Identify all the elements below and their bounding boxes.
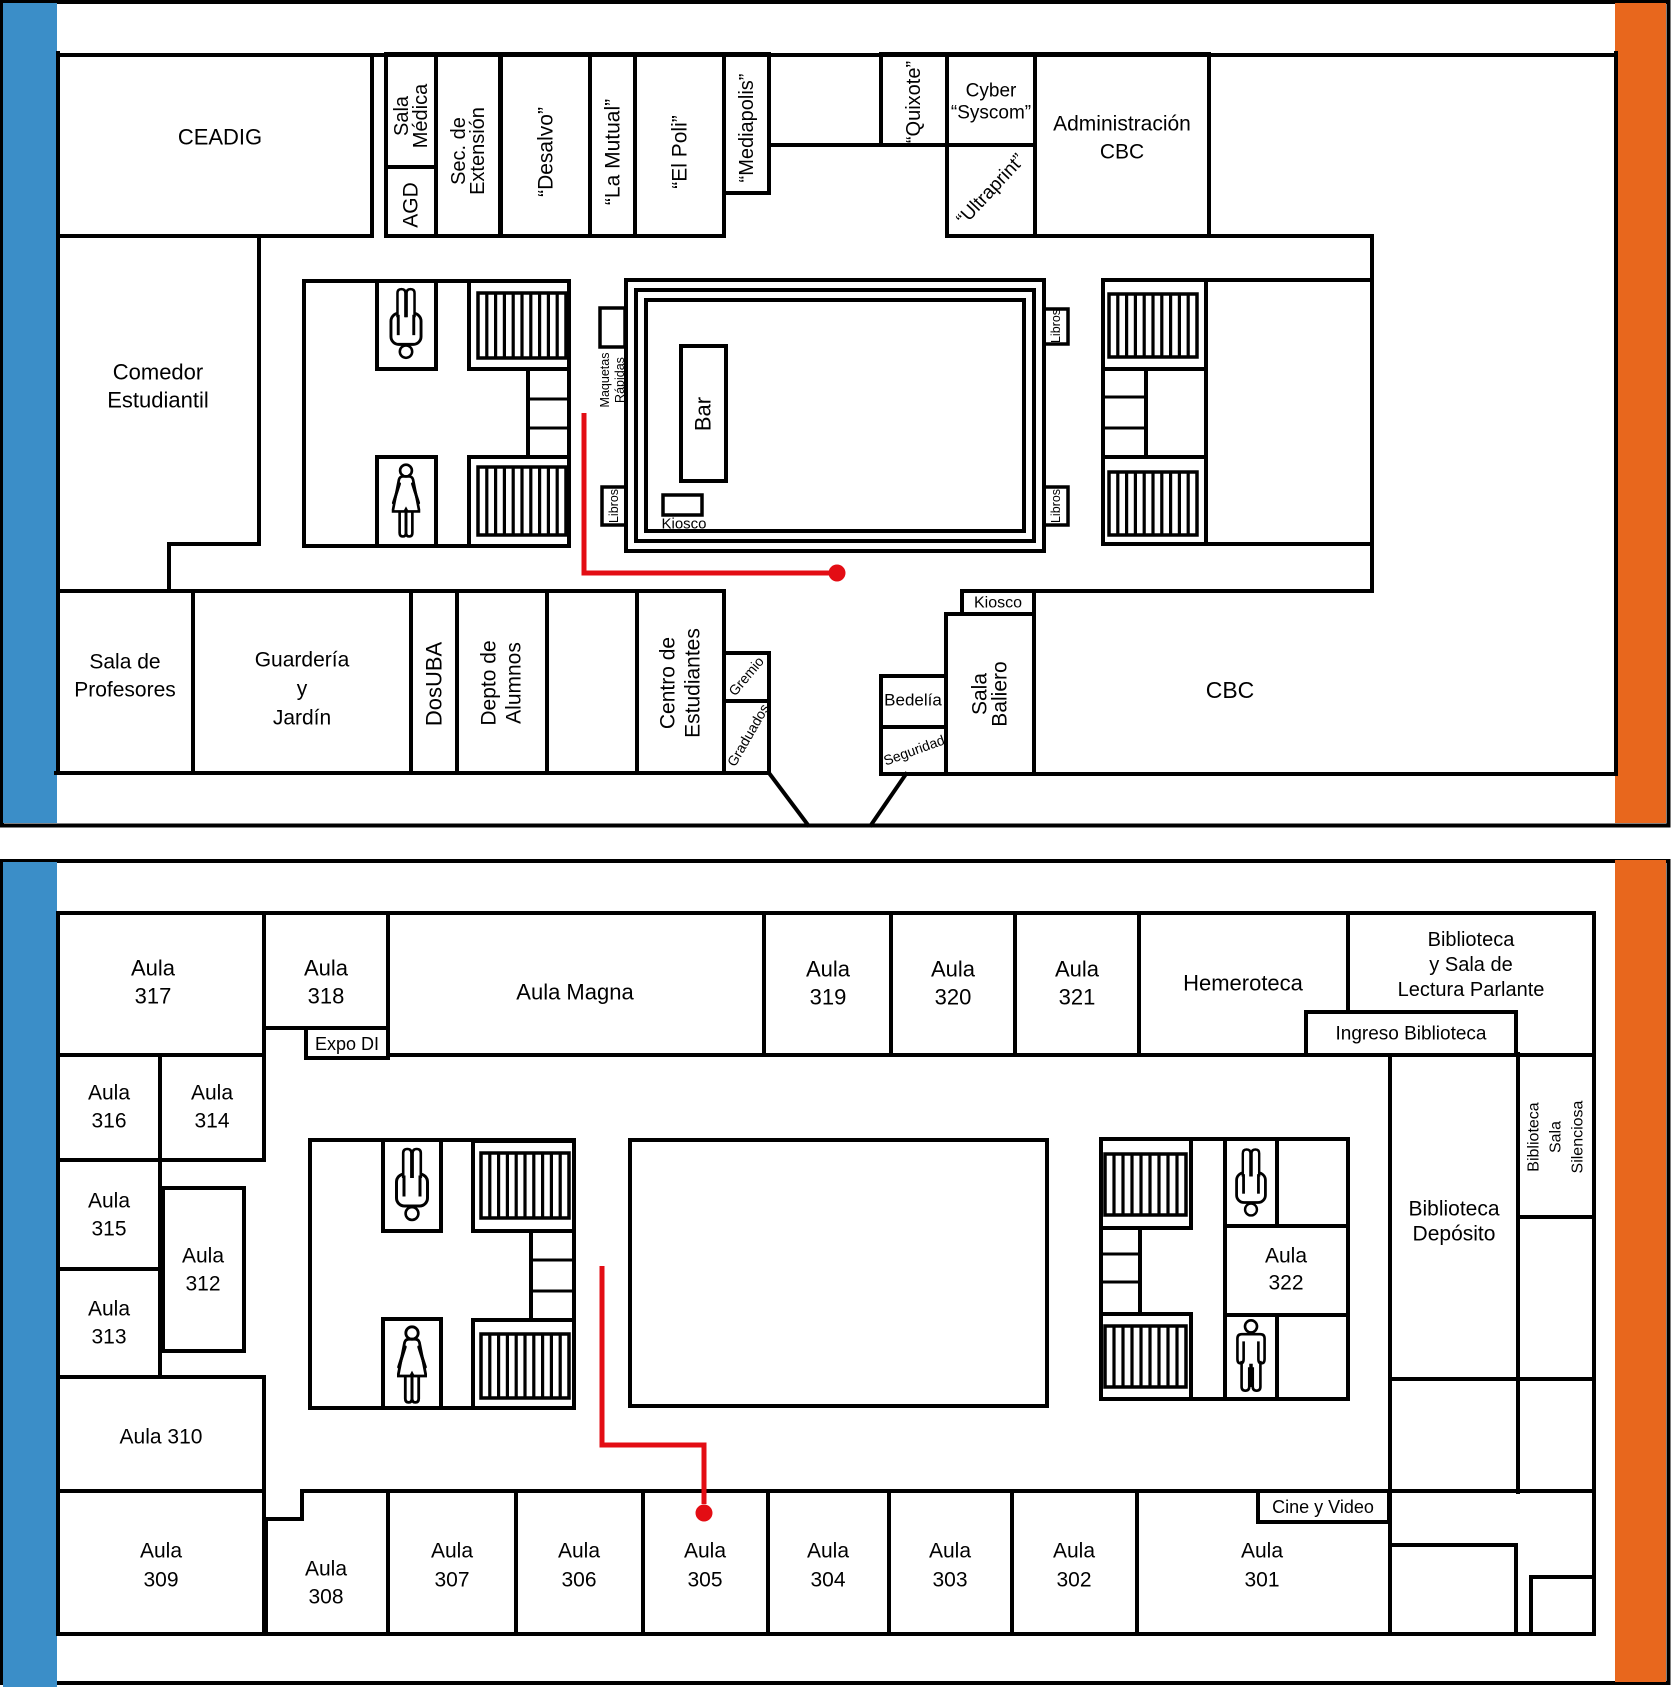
svg-text:“Desalvo”: “Desalvo” (535, 107, 558, 197)
svg-text:Aula 310: Aula 310 (120, 1426, 203, 1449)
svg-text:Profesores: Profesores (74, 679, 176, 702)
svg-text:Centro de: Centro de (657, 637, 680, 729)
svg-text:Aula: Aula (929, 1540, 971, 1563)
svg-text:322: 322 (1268, 1272, 1303, 1295)
svg-text:301: 301 (1244, 1569, 1279, 1592)
svg-text:Aula: Aula (931, 957, 976, 982)
svg-text:Maquetas: Maquetas (598, 353, 612, 408)
svg-text:Depto de: Depto de (478, 640, 501, 725)
svg-text:Médica: Médica (410, 83, 432, 148)
svg-text:“Mediapolis”: “Mediapolis” (736, 74, 758, 183)
svg-text:309: 309 (143, 1569, 178, 1592)
svg-text:Rápidas: Rápidas (613, 357, 627, 403)
svg-text:Administración: Administración (1053, 113, 1191, 136)
svg-text:CBC: CBC (1100, 141, 1144, 164)
svg-text:Libros: Libros (607, 489, 621, 523)
svg-text:Bedelía: Bedelía (884, 691, 942, 710)
svg-text:Aula: Aula (304, 956, 349, 981)
svg-text:Aula: Aula (1055, 957, 1100, 982)
svg-text:317: 317 (135, 984, 172, 1009)
svg-text:Aula: Aula (1053, 1540, 1095, 1563)
svg-text:Ingreso Biblioteca: Ingreso Biblioteca (1335, 1024, 1486, 1045)
svg-text:302: 302 (1056, 1569, 1091, 1592)
svg-text:306: 306 (561, 1569, 596, 1592)
svg-text:CBC: CBC (1206, 677, 1255, 703)
svg-text:CEADIG: CEADIG (178, 125, 262, 150)
svg-text:“La Mutual”: “La Mutual” (602, 99, 625, 205)
svg-text:AGD: AGD (400, 182, 423, 228)
svg-text:320: 320 (935, 985, 972, 1010)
svg-text:303: 303 (932, 1569, 967, 1592)
svg-text:Aula: Aula (191, 1082, 233, 1105)
svg-text:DosUBA: DosUBA (422, 641, 447, 726)
svg-text:“Syscom”: “Syscom” (951, 103, 1031, 124)
svg-text:“Quixote”: “Quixote” (903, 61, 925, 143)
svg-text:Lectura Parlante: Lectura Parlante (1398, 979, 1545, 1001)
svg-text:Biblioteca: Biblioteca (1526, 1102, 1543, 1171)
svg-text:314: 314 (194, 1110, 229, 1133)
svg-text:318: 318 (308, 984, 345, 1009)
svg-text:Depósito: Depósito (1413, 1223, 1496, 1246)
svg-text:Silenciosa: Silenciosa (1570, 1100, 1587, 1173)
svg-text:Aula: Aula (131, 956, 176, 981)
svg-text:Comedor: Comedor (113, 360, 203, 385)
svg-text:Aula: Aula (806, 957, 851, 982)
svg-text:Aula: Aula (140, 1540, 182, 1563)
svg-text:Guardería: Guardería (255, 649, 350, 672)
svg-text:Kiosco: Kiosco (974, 595, 1022, 612)
svg-text:Bar: Bar (691, 397, 716, 431)
svg-text:Alumnos: Alumnos (503, 642, 526, 724)
svg-text:Estudiantes: Estudiantes (682, 628, 705, 738)
svg-text:Expo DI: Expo DI (315, 1034, 379, 1054)
svg-text:Aula: Aula (558, 1540, 600, 1563)
svg-text:321: 321 (1059, 985, 1096, 1010)
svg-text:Biblioteca: Biblioteca (1408, 1198, 1499, 1221)
svg-text:Cyber: Cyber (966, 81, 1017, 102)
svg-text:313: 313 (91, 1326, 126, 1349)
svg-text:Extensión: Extensión (467, 107, 489, 195)
svg-text:Aula: Aula (305, 1558, 347, 1581)
svg-text:304: 304 (810, 1569, 845, 1592)
svg-text:307: 307 (434, 1569, 469, 1592)
svg-text:Aula: Aula (684, 1540, 726, 1563)
svg-text:Biblioteca: Biblioteca (1428, 929, 1516, 951)
svg-text:Sala de: Sala de (89, 651, 160, 674)
svg-text:Aula: Aula (88, 1082, 130, 1105)
svg-text:Hemeroteca: Hemeroteca (1183, 971, 1304, 996)
svg-text:308: 308 (308, 1586, 343, 1609)
svg-text:Baliero: Baliero (989, 661, 1012, 726)
svg-text:Aula: Aula (807, 1540, 849, 1563)
svg-text:316: 316 (91, 1110, 126, 1133)
svg-text:Kiosco: Kiosco (661, 516, 706, 533)
svg-text:Aula: Aula (88, 1298, 130, 1321)
svg-text:Aula: Aula (431, 1540, 473, 1563)
svg-text:315: 315 (91, 1218, 126, 1241)
svg-text:y Sala de: y Sala de (1429, 954, 1512, 976)
svg-text:Estudiantil: Estudiantil (107, 388, 209, 413)
svg-text:Sala: Sala (1548, 1121, 1565, 1153)
svg-text:Aula: Aula (1241, 1540, 1283, 1563)
svg-text:Cine y Video: Cine y Video (1272, 1497, 1374, 1517)
svg-text:312: 312 (185, 1273, 220, 1296)
svg-text:Jardín: Jardín (273, 707, 331, 730)
svg-text:Aula: Aula (182, 1245, 224, 1268)
svg-text:Aula: Aula (1265, 1245, 1307, 1268)
svg-text:Aula Magna: Aula Magna (516, 980, 634, 1005)
svg-text:Aula: Aula (88, 1190, 130, 1213)
svg-text:Libros: Libros (1049, 489, 1063, 523)
svg-text:305: 305 (687, 1569, 722, 1592)
svg-text:“El Poli”: “El Poli” (669, 115, 692, 189)
svg-text:y: y (297, 678, 308, 701)
svg-text:319: 319 (810, 985, 847, 1010)
svg-text:Libros: Libros (1049, 309, 1063, 343)
